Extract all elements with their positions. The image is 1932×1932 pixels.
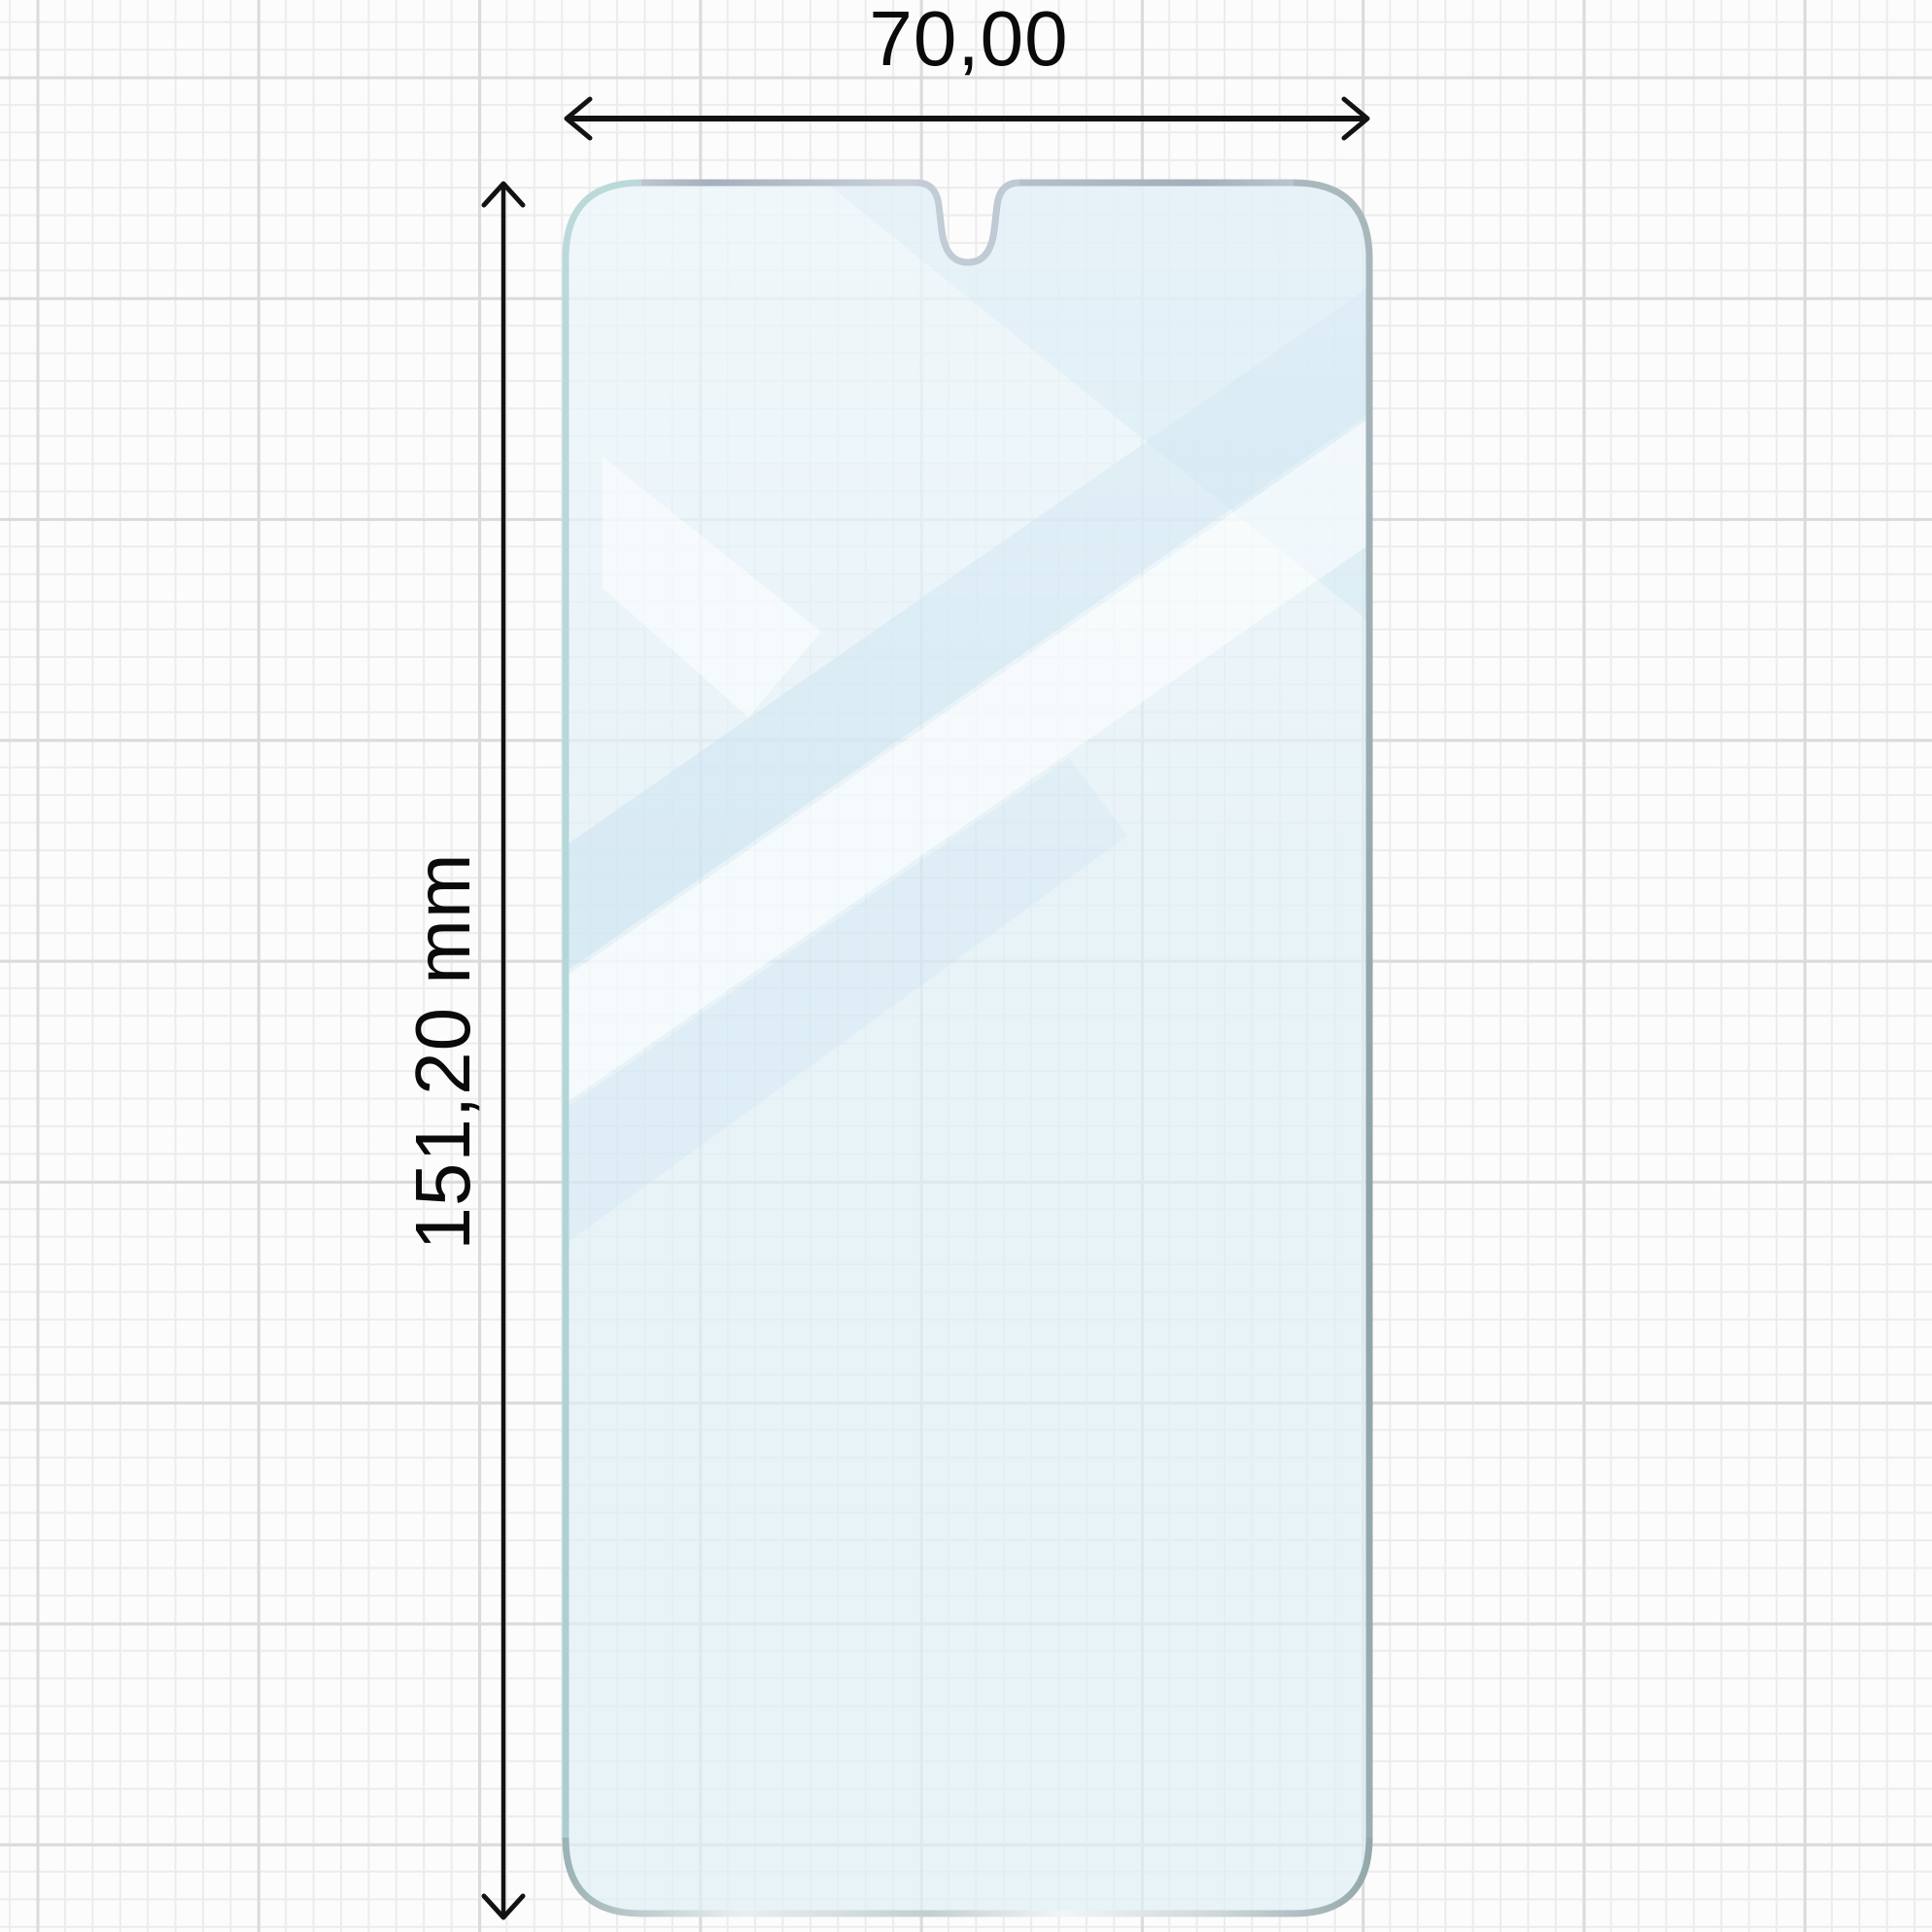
height-dimension-line (484, 184, 523, 1917)
screen-protector-drawing (0, 0, 1932, 1932)
height-dimension-label: 151,20 mm (404, 852, 482, 1250)
width-dimension-line (567, 99, 1367, 138)
width-dimension-label: 70,00 (869, 0, 1068, 78)
graph-paper-background: 70,00 151,20 mm (0, 0, 1932, 1932)
